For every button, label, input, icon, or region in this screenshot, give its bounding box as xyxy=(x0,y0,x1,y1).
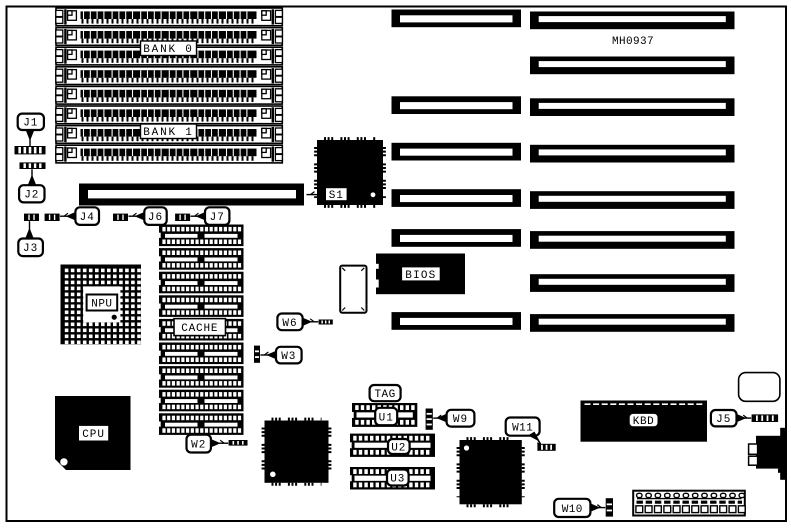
svg-text:U3: U3 xyxy=(390,473,405,485)
svg-text:J3: J3 xyxy=(23,243,38,255)
svg-text:CPU: CPU xyxy=(82,429,105,441)
svg-text:J6: J6 xyxy=(148,212,163,224)
svg-text:J1: J1 xyxy=(23,118,38,130)
svg-text:W9: W9 xyxy=(453,414,468,426)
svg-text:W3: W3 xyxy=(281,351,296,363)
svg-text:W11: W11 xyxy=(512,423,533,435)
svg-text:BIOS: BIOS xyxy=(405,270,436,282)
svg-text:J2: J2 xyxy=(24,190,39,202)
svg-text:CACHE: CACHE xyxy=(181,323,218,335)
svg-text:J5: J5 xyxy=(716,414,731,426)
svg-text:NPU: NPU xyxy=(91,298,112,310)
svg-text:BANK 0: BANK 0 xyxy=(143,44,193,56)
svg-text:S1: S1 xyxy=(329,190,344,202)
svg-text:W10: W10 xyxy=(562,504,583,516)
svg-text:BANK 1: BANK 1 xyxy=(143,127,193,139)
svg-text:J4: J4 xyxy=(80,212,95,224)
svg-text:U1: U1 xyxy=(379,412,394,424)
svg-text:U2: U2 xyxy=(391,442,406,454)
svg-text:W2: W2 xyxy=(191,439,206,451)
svg-text:J7: J7 xyxy=(210,212,225,224)
svg-text:KBD: KBD xyxy=(633,416,655,428)
svg-text:W6: W6 xyxy=(282,318,297,330)
svg-text:MH0937: MH0937 xyxy=(612,36,654,48)
svg-text:TAG: TAG xyxy=(374,389,395,401)
